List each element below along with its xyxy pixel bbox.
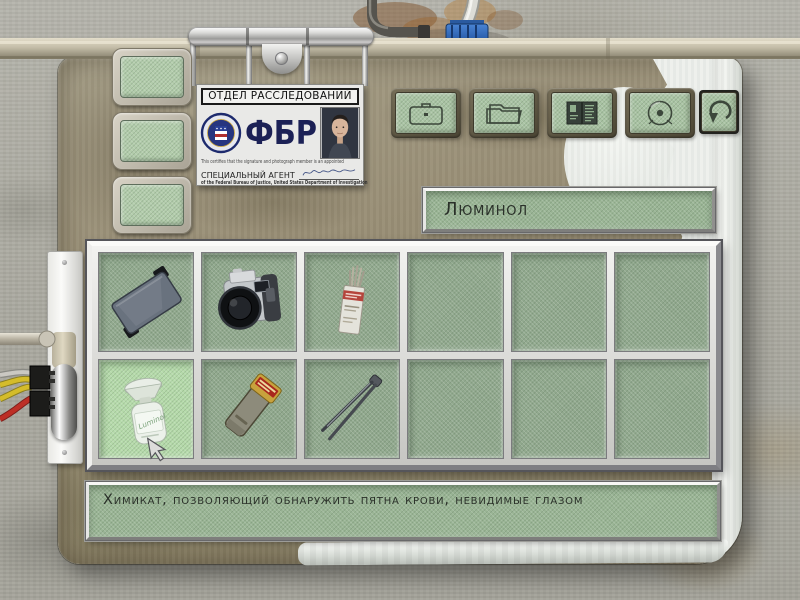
clip-seam <box>306 28 309 45</box>
agent-photo <box>320 107 360 159</box>
inventory-slot-9[interactable] <box>304 359 400 459</box>
item-equipment-case <box>99 253 193 351</box>
item-description-inner: Химикат, позволяющий обнаружить пятна кр… <box>89 485 717 537</box>
inventory-slot-8[interactable] <box>201 359 297 459</box>
inventory-slot-4[interactable] <box>407 252 503 352</box>
item-description-text: Химикат, позволяющий обнаружить пятна кр… <box>89 485 717 508</box>
inventory-grid: Luminol <box>87 241 721 470</box>
inventory-slot-6[interactable] <box>614 252 710 352</box>
item-description-field: Химикат, позволяющий обнаружить пятна кр… <box>86 482 720 540</box>
inventory-slot-12[interactable] <box>614 359 710 459</box>
inventory-slot-1[interactable] <box>98 252 194 352</box>
clip-seam <box>246 28 249 45</box>
card-agent-label: СПЕЦИАЛЬНЫЙ АГЕНТ <box>201 171 295 180</box>
inventory-slot-3[interactable] <box>304 252 400 352</box>
wall-wires-decor <box>0 325 100 475</box>
card-agency-abbrev: ФБР <box>244 114 318 152</box>
toolbar-bezel <box>547 88 617 138</box>
card-certify-line: This certifies that the signature and ph… <box>201 159 367 165</box>
briefcase-icon <box>404 98 448 128</box>
inventory-slot-2[interactable] <box>201 252 297 352</box>
card-department-title: ОТДЕЛ РАССЛЕДОВАНИЙ <box>201 88 359 105</box>
folder-icon <box>482 98 526 128</box>
inventory-slot-5[interactable] <box>511 252 607 352</box>
item-uv-lamp <box>202 360 296 458</box>
open-book-icon <box>560 98 604 128</box>
card-agent-row: СПЕЦИАЛЬНЫЙ АГЕНТ <box>201 166 359 180</box>
toolbar-button-casebook[interactable] <box>551 92 613 134</box>
inventory-slot-10[interactable] <box>407 359 503 459</box>
toolbar-bezel <box>625 88 695 138</box>
disc-icon <box>638 98 682 128</box>
side-slot-2-face <box>120 120 184 162</box>
item-name-text: Люминол <box>426 191 712 229</box>
item-name-field: Люминол <box>423 188 715 232</box>
fbi-seal-icon <box>200 112 242 154</box>
back-arrow-icon <box>702 94 736 130</box>
agent-signature <box>299 166 359 180</box>
card-middle-row: ФБР <box>197 107 363 159</box>
toolbar-button-disc[interactable] <box>629 92 691 134</box>
side-slot-1-face <box>120 56 184 98</box>
item-photo-camera <box>202 253 296 351</box>
side-slot-button-3[interactable] <box>112 176 192 234</box>
side-slot-button-1[interactable] <box>112 48 192 106</box>
toolbar-bezel <box>469 88 539 138</box>
item-name-inner: Люминол <box>426 191 712 229</box>
toolbar-bezel <box>699 90 739 134</box>
game-screen: ОТДЕЛ РАССЛЕДОВАНИЙ ФБР <box>0 0 800 600</box>
toolbar-button-folder[interactable] <box>473 92 535 134</box>
screw-icon <box>62 260 67 265</box>
panel-plastic-bottom <box>298 539 728 565</box>
toolbar-button-back[interactable] <box>701 92 737 132</box>
toolbar-bezel <box>391 88 461 138</box>
fbi-id-card: ОТДЕЛ РАССЛЕДОВАНИЙ ФБР <box>196 84 364 186</box>
card-footer-line: of the Federal Bureau of Justice, United… <box>201 180 367 186</box>
inventory-slot-11[interactable] <box>511 359 607 459</box>
toolbar-button-briefcase[interactable] <box>395 92 457 134</box>
clip-pin-icon <box>275 52 288 65</box>
item-tweezers <box>305 360 399 458</box>
side-slot-button-2[interactable] <box>112 112 192 170</box>
item-swab-pack <box>305 253 399 351</box>
side-slot-3-face <box>120 184 184 226</box>
